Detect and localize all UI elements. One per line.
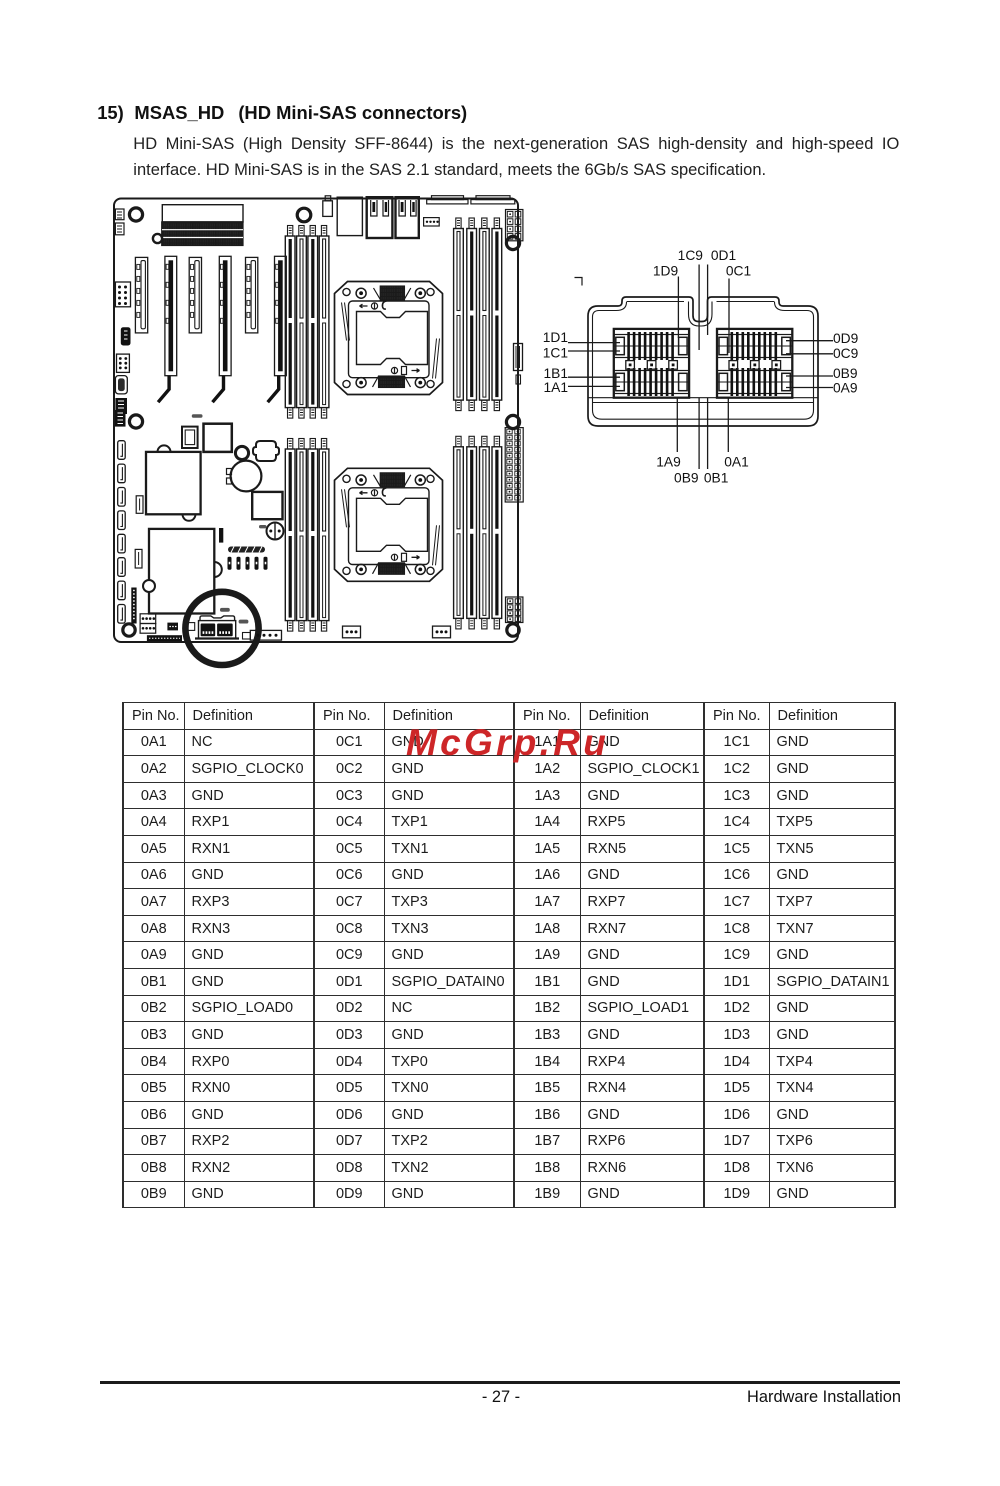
svg-text:0D9: 0D9 [833,331,859,346]
svg-text:1D1: 1D1 [543,330,568,345]
svg-text:1D9: 1D9 [653,264,679,279]
svg-text:1C1: 1C1 [543,346,568,361]
svg-text:1A1: 1A1 [543,380,568,395]
svg-text:0B9: 0B9 [674,471,699,486]
svg-text:0A1: 0A1 [724,455,749,470]
svg-text:1C9: 1C9 [678,248,704,263]
svg-text:1A9: 1A9 [656,455,681,470]
svg-text:0B1: 0B1 [704,471,729,486]
svg-text:0D1: 0D1 [711,248,736,263]
svg-text:1B1: 1B1 [543,366,568,381]
svg-text:0B9: 0B9 [833,366,858,381]
svg-text:0A9: 0A9 [833,381,858,396]
svg-text:0C9: 0C9 [833,346,859,361]
svg-text:0C1: 0C1 [726,264,751,279]
